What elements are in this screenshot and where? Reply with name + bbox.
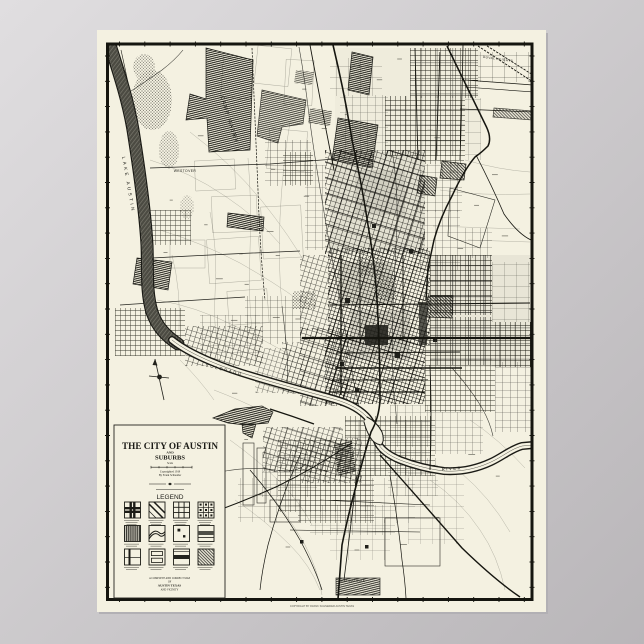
svg-text:By Frank Schneider: By Frank Schneider	[159, 474, 181, 477]
svg-text:Scale: Scale	[167, 462, 174, 465]
svg-text:COPYRIGHT BY FRANK SCHNEIDER A: COPYRIGHT BY FRANK SCHNEIDER AUSTIN TEXA…	[290, 604, 355, 608]
svg-text:AUSTIN TEXAS: AUSTIN TEXAS	[158, 584, 182, 588]
svg-text:LEGEND: LEGEND	[157, 495, 185, 501]
svg-text:WESTOVER: WESTOVER	[174, 169, 197, 173]
svg-text:SUBURBS: SUBURBS	[155, 455, 185, 462]
svg-text:AND VICINITY: AND VICINITY	[161, 589, 179, 592]
svg-text:THE CITY OF AUSTIN: THE CITY OF AUSTIN	[122, 441, 218, 451]
svg-text:DEAF INSTITUTE: DEAF INSTITUTE	[339, 579, 365, 583]
